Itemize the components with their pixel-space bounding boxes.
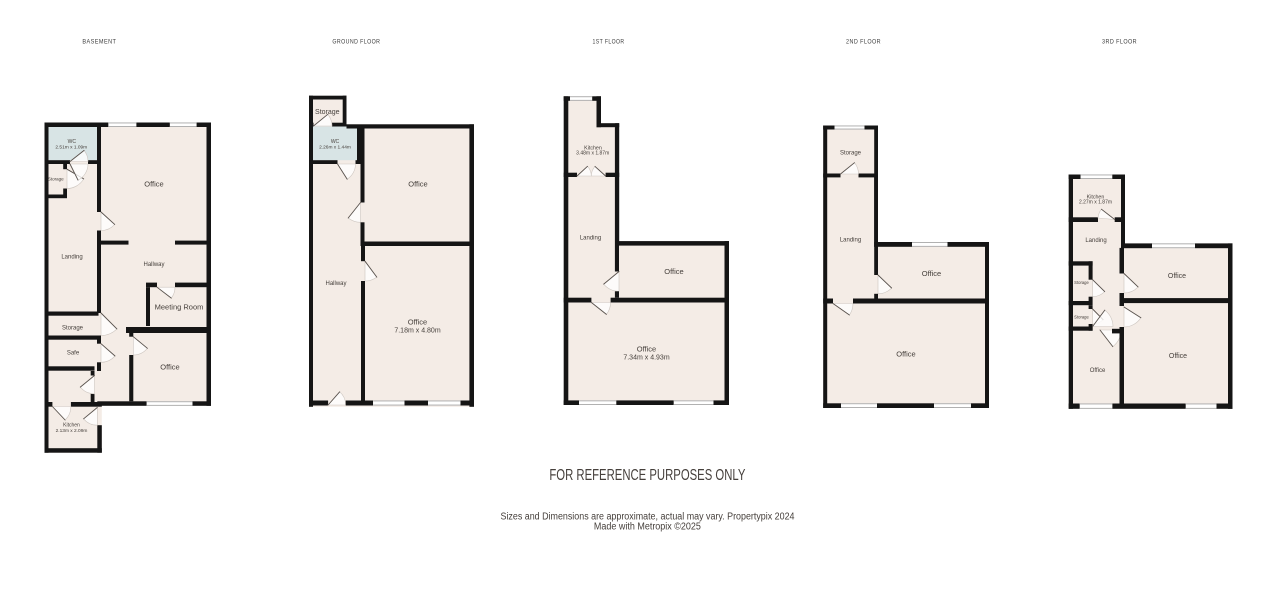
svg-text:Hallway: Hallway: [325, 281, 346, 287]
svg-text:Safe: Safe: [67, 351, 80, 357]
svg-text:Office: Office: [144, 180, 163, 189]
svg-text:1ST FLOOR: 1ST FLOOR: [593, 39, 625, 46]
svg-text:3.48m x 1.87m: 3.48m x 1.87m: [576, 151, 609, 157]
svg-text:Meeting Room: Meeting Room: [155, 303, 204, 312]
svg-text:7.18m x 4.80m: 7.18m x 4.80m: [394, 327, 440, 334]
svg-text:Storage: Storage: [1074, 280, 1089, 285]
svg-text:Storage: Storage: [315, 109, 340, 116]
svg-text:FOR REFERENCE PURPOSES ONLY: FOR REFERENCE PURPOSES ONLY: [549, 467, 745, 484]
svg-text:Office: Office: [1169, 353, 1187, 360]
svg-text:7.34m x 4.93m: 7.34m x 4.93m: [623, 354, 669, 361]
svg-text:Landing: Landing: [840, 238, 861, 244]
svg-text:3RD FLOOR: 3RD FLOOR: [1102, 39, 1137, 46]
svg-text:Storage: Storage: [840, 151, 862, 157]
svg-text:Office: Office: [896, 350, 915, 359]
svg-text:Kitchen: Kitchen: [63, 423, 80, 429]
svg-text:Storage: Storage: [1074, 314, 1089, 319]
svg-text:Landing: Landing: [61, 254, 82, 260]
svg-text:Office: Office: [408, 180, 427, 189]
svg-text:WC: WC: [331, 139, 340, 145]
svg-text:WC: WC: [68, 139, 77, 145]
svg-text:Landing: Landing: [580, 236, 601, 242]
svg-text:2.13m x 2.09m: 2.13m x 2.09m: [56, 428, 88, 434]
svg-text:Made with Metropix ©2025: Made with Metropix ©2025: [594, 522, 701, 533]
svg-text:2.51m x 1.09m: 2.51m x 1.09m: [55, 144, 87, 150]
svg-text:Storage: Storage: [48, 177, 64, 182]
svg-text:Storage: Storage: [62, 326, 84, 332]
svg-text:Hallway: Hallway: [143, 262, 164, 268]
svg-text:Office: Office: [922, 269, 941, 278]
svg-text:2.26m x 1.44m: 2.26m x 1.44m: [319, 145, 351, 151]
svg-text:2.27m x 1.87m: 2.27m x 1.87m: [1079, 199, 1112, 205]
svg-text:Office: Office: [160, 362, 179, 371]
svg-text:Office: Office: [664, 267, 683, 276]
svg-text:Office: Office: [1090, 368, 1106, 374]
svg-text:Landing: Landing: [1085, 238, 1106, 244]
svg-text:BASEMENT: BASEMENT: [82, 39, 116, 46]
svg-text:Office: Office: [637, 345, 656, 354]
svg-text:2ND FLOOR: 2ND FLOOR: [846, 39, 881, 46]
svg-text:GROUND FLOOR: GROUND FLOOR: [332, 39, 380, 46]
svg-text:Office: Office: [1168, 273, 1186, 280]
svg-text:Office: Office: [408, 318, 427, 327]
